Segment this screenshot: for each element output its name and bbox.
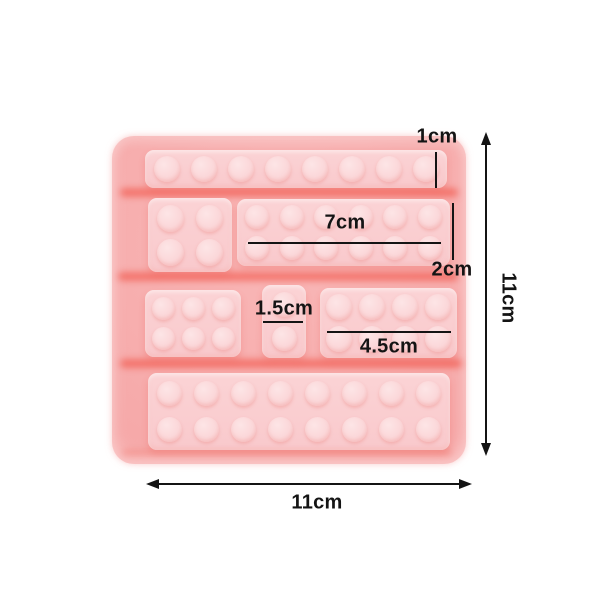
arrow-right-icon: [459, 479, 472, 489]
groove-shadow: [120, 188, 458, 197]
stud: [305, 381, 330, 406]
stud: [425, 326, 451, 352]
brick-1x8-top: [145, 150, 447, 188]
stud: [245, 205, 269, 229]
dim-label-1-5cm: 1.5cm: [255, 298, 313, 321]
stud: [342, 381, 367, 406]
stud: [245, 236, 269, 260]
stud: [182, 327, 205, 350]
stud: [314, 236, 338, 260]
brick-2x3: [145, 290, 241, 357]
dim-label-7cm: 7cm: [325, 212, 366, 235]
stud: [196, 205, 223, 232]
stud: [342, 417, 367, 442]
stud: [268, 381, 293, 406]
stud: [212, 297, 235, 320]
arrow-up-icon: [481, 132, 491, 145]
stud-grid: [151, 376, 447, 447]
dim-label-mold-height: 11cm: [497, 272, 520, 323]
stud: [326, 326, 352, 352]
dim-label-4-5cm: 4.5cm: [360, 336, 418, 359]
dim-line-1-5cm: [263, 321, 303, 323]
stud: [418, 205, 442, 229]
mold-height-arrow: [480, 132, 492, 456]
brick-2x2: [148, 198, 232, 272]
stud-grid: [151, 201, 229, 269]
dim-label-1cm: 1cm: [417, 126, 458, 149]
stud: [157, 239, 184, 266]
arrow-down-icon: [481, 443, 491, 456]
stud: [191, 156, 217, 182]
stud: [182, 297, 205, 320]
dim-line-7cm: [248, 242, 441, 244]
stud: [157, 417, 182, 442]
groove-shadow: [120, 359, 462, 368]
stud: [194, 417, 219, 442]
stud: [157, 381, 182, 406]
dim-line-4-5cm: [327, 331, 451, 333]
stud: [280, 205, 304, 229]
stud: [231, 381, 256, 406]
dim-line-1cm: [435, 152, 437, 188]
groove-shadow: [118, 272, 458, 281]
stud: [231, 417, 256, 442]
groove-shadow: [122, 449, 452, 456]
stud: [416, 417, 441, 442]
stud: [302, 156, 328, 182]
stud: [152, 297, 175, 320]
stud: [339, 156, 365, 182]
stud: [272, 326, 297, 351]
stud: [383, 236, 407, 260]
stud: [228, 156, 254, 182]
stud: [379, 417, 404, 442]
brick-2x8-bottom: [148, 373, 450, 450]
dim-line-2cm: [452, 203, 454, 260]
stud: [265, 156, 291, 182]
stud: [326, 294, 352, 320]
stud-grid: [148, 153, 444, 185]
stud: [157, 205, 184, 232]
product-dimension-diagram: 1cm 7cm 2cm 1.5cm 4.5cm 11cm 11cm: [0, 0, 600, 600]
stud: [416, 381, 441, 406]
stud: [383, 205, 407, 229]
stud: [280, 236, 304, 260]
stud-grid: [148, 293, 238, 354]
stud: [268, 417, 293, 442]
dim-label-2cm: 2cm: [432, 259, 473, 282]
stud: [305, 417, 330, 442]
stud: [425, 294, 451, 320]
stud: [196, 239, 223, 266]
stud: [359, 294, 385, 320]
arrow-shaft: [485, 143, 487, 445]
stud: [418, 236, 442, 260]
stud: [349, 236, 373, 260]
dim-label-mold-width: 11cm: [291, 492, 342, 515]
arrow-shaft: [157, 483, 461, 485]
stud: [194, 381, 219, 406]
mold-width-arrow: [146, 478, 472, 490]
stud: [212, 327, 235, 350]
arrow-left-icon: [146, 479, 159, 489]
stud: [154, 156, 180, 182]
stud: [152, 327, 175, 350]
stud: [379, 381, 404, 406]
stud: [376, 156, 402, 182]
stud: [392, 294, 418, 320]
